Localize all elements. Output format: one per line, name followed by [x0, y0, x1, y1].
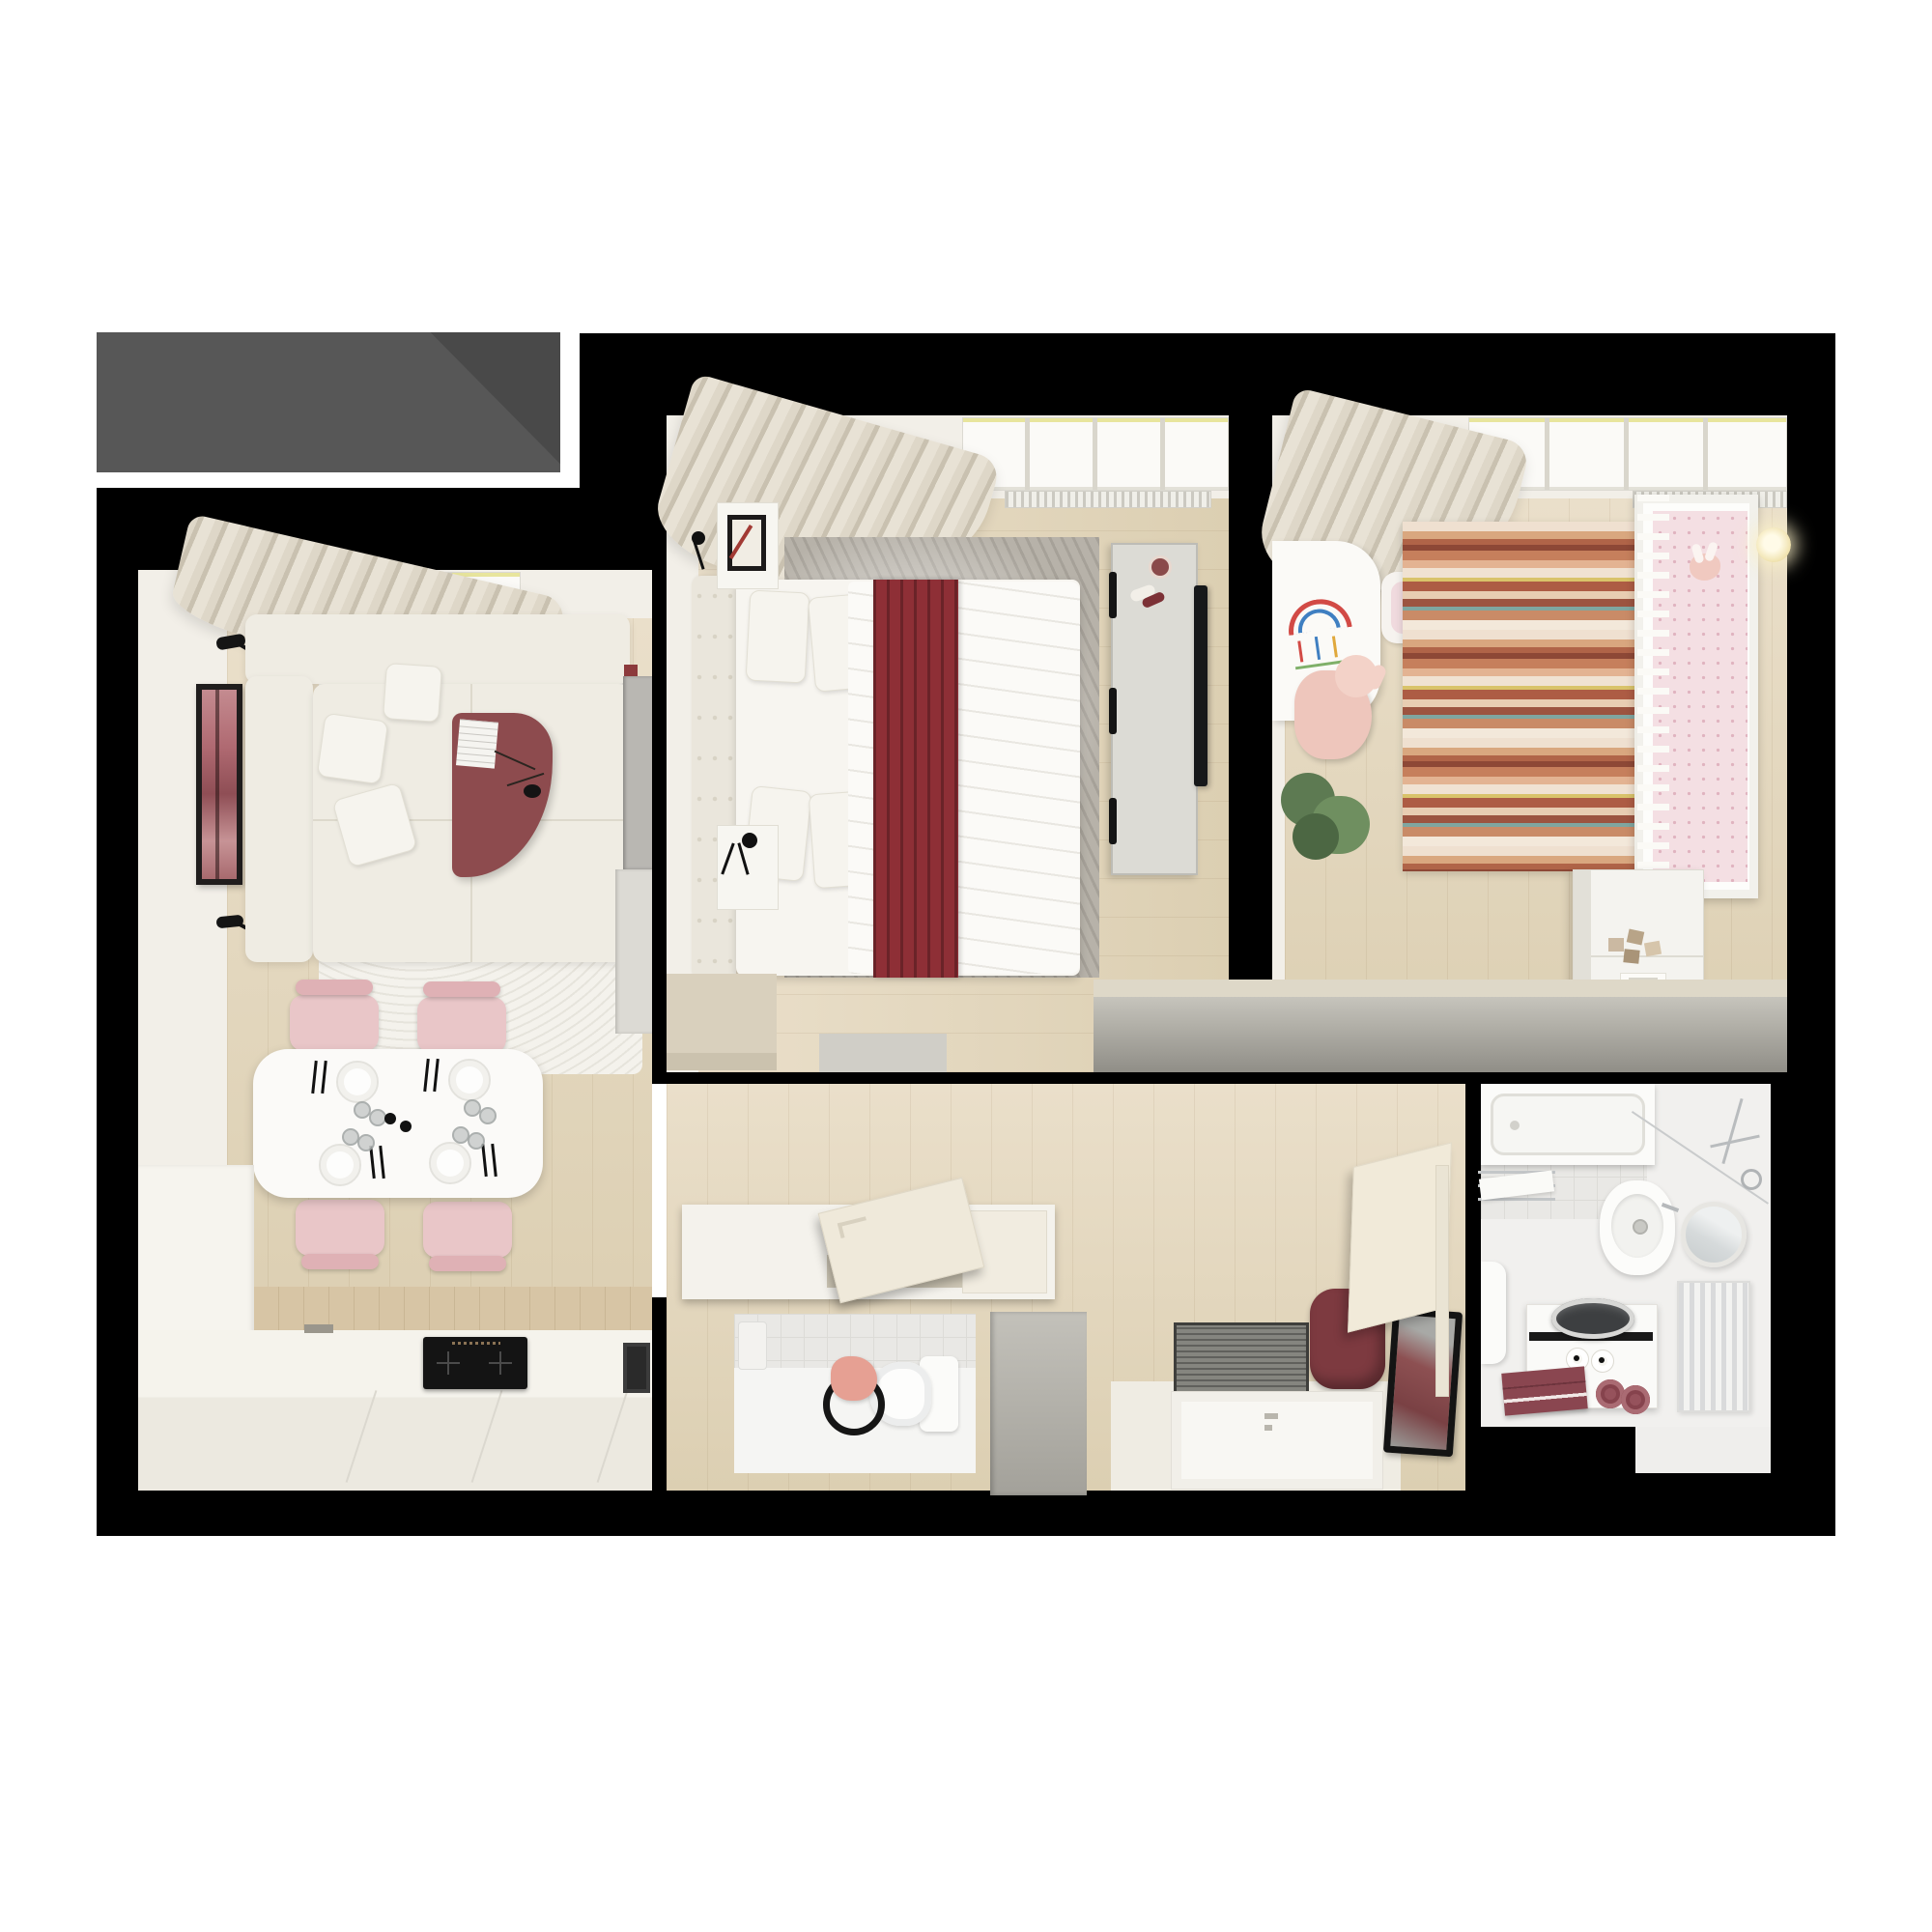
cutlery	[321, 1061, 327, 1094]
crib-bunny-plush	[1686, 542, 1724, 584]
branch	[495, 751, 536, 771]
throw-pillow	[383, 663, 442, 723]
rolled-towel	[1621, 1385, 1650, 1414]
red-runner-blanket	[873, 580, 958, 978]
plate	[319, 1144, 361, 1186]
frame-art	[202, 690, 237, 879]
shower-set-icon	[1702, 1097, 1770, 1194]
burner-cross	[499, 1351, 501, 1375]
toilet-paper-holder	[738, 1321, 767, 1370]
cutlery	[481, 1144, 488, 1177]
branch	[507, 773, 545, 786]
bench-top	[1094, 980, 1787, 997]
wc-room	[734, 1314, 976, 1473]
dining-table	[253, 1049, 543, 1198]
entry-closet	[990, 1312, 1087, 1495]
induction-hob	[423, 1337, 527, 1389]
wall-join	[580, 415, 667, 488]
window-mullion	[1624, 418, 1629, 490]
wall-sconce-icon	[1756, 527, 1791, 562]
burner-cross	[447, 1351, 449, 1375]
chair-backrest	[429, 1256, 506, 1271]
wardrobe-handle	[1109, 798, 1117, 844]
floorplan-render	[0, 0, 1932, 1932]
roll-core	[1599, 1357, 1605, 1363]
lamp-arm	[693, 541, 704, 569]
bathtub	[1481, 1084, 1655, 1165]
potted-plant	[1277, 763, 1376, 867]
towel-rail	[1478, 1165, 1559, 1211]
counter-seam	[346, 1390, 378, 1483]
low-bench	[819, 1034, 947, 1072]
wardrobe	[1111, 543, 1198, 875]
bench-front	[1094, 997, 1787, 1072]
plate	[429, 1142, 471, 1184]
dining-chair	[417, 997, 506, 1053]
cup	[1151, 558, 1169, 576]
crib	[1634, 495, 1758, 898]
window-mullion	[1093, 418, 1097, 490]
cabinet-panel	[615, 869, 652, 1034]
plate	[448, 1059, 491, 1101]
salt-pepper	[400, 1121, 412, 1132]
leaning-art-frame	[623, 1343, 650, 1393]
bed-pillow	[746, 589, 810, 683]
cutlery	[423, 1059, 430, 1092]
window-mullion	[1160, 418, 1165, 490]
roll-core	[1574, 1355, 1579, 1361]
salt-pepper	[384, 1113, 396, 1124]
cutlery	[379, 1146, 385, 1179]
bathroom-floor-tab	[1635, 1427, 1771, 1473]
kitchen-counter	[138, 1330, 652, 1491]
toy-blocks	[1608, 926, 1666, 965]
bed-foot-bench	[667, 974, 777, 1070]
block	[1627, 928, 1645, 945]
door-lock	[1264, 1425, 1272, 1431]
window-mullion	[1025, 418, 1030, 490]
dining-chair	[290, 995, 379, 1051]
striped-rug	[1403, 522, 1642, 871]
shoe-cabinet-frame	[1435, 1165, 1449, 1397]
sink-strip	[304, 1324, 333, 1333]
photo-frame	[727, 515, 766, 571]
rolled-towel	[1596, 1379, 1625, 1408]
hob-controls	[452, 1342, 500, 1345]
foliage	[1293, 813, 1339, 860]
bed-headboard	[692, 576, 736, 980]
chair-backrest	[301, 1254, 379, 1269]
magazine	[456, 719, 498, 768]
cutlery	[491, 1144, 497, 1177]
bedroom-window	[962, 417, 1229, 491]
sofa-arm	[245, 676, 313, 962]
chair-backrest	[423, 981, 500, 997]
crib-rails	[1634, 495, 1669, 898]
counter-seam	[471, 1390, 503, 1483]
mirror	[1383, 1308, 1463, 1458]
wall-lamp-icon	[688, 529, 723, 568]
washer-opening	[1551, 1298, 1634, 1339]
plate	[336, 1061, 379, 1103]
wall-living-bedroom	[652, 488, 667, 1084]
lamp-arm	[721, 843, 734, 875]
dining-chair	[423, 1202, 512, 1258]
basin-drain	[1633, 1219, 1648, 1235]
gray-header-shadow	[97, 332, 560, 472]
chair-backrest	[296, 980, 373, 995]
front-door-open	[1171, 1391, 1383, 1490]
picture-frame	[196, 684, 242, 885]
throw-pillow	[317, 713, 389, 785]
round-mirror	[1681, 1202, 1747, 1267]
wall-left	[97, 488, 138, 1536]
cutlery	[433, 1059, 440, 1092]
wall-lamp-icon	[721, 833, 759, 877]
art-streak	[215, 690, 219, 879]
nursery-bench	[1094, 980, 1787, 1072]
cutlery	[369, 1146, 376, 1179]
glass	[357, 1134, 375, 1151]
lamp-head	[742, 833, 757, 848]
bedroom-radiator	[1005, 491, 1211, 508]
wardrobe-handle	[1109, 572, 1117, 618]
dining-chair	[296, 1200, 384, 1256]
shower-head	[1741, 1169, 1762, 1190]
plush-toy	[1285, 655, 1385, 775]
block	[1608, 938, 1624, 952]
glass	[479, 1107, 497, 1124]
ladder-radiator	[1677, 1281, 1750, 1412]
nightstand	[717, 502, 779, 589]
window-mullion	[1703, 418, 1708, 490]
towel	[1479, 1170, 1554, 1200]
gray-header-block	[97, 332, 560, 472]
tv-panel	[1194, 585, 1207, 786]
counter-seam	[597, 1390, 629, 1483]
wardrobe-panel	[623, 676, 652, 869]
toilet-partial	[1481, 1262, 1506, 1364]
shower-pipe	[1721, 1098, 1743, 1164]
wardrobe-handle	[1109, 688, 1117, 734]
pink-towel	[831, 1356, 877, 1401]
door-handle	[1264, 1413, 1278, 1419]
branch-vase	[516, 777, 545, 806]
tub-drain	[1510, 1121, 1520, 1130]
window-mullion	[1545, 418, 1549, 490]
vase	[524, 784, 541, 798]
washbasin	[1600, 1180, 1675, 1275]
glass	[468, 1132, 485, 1150]
maroon-towel-stack	[1501, 1366, 1588, 1415]
cutlery	[311, 1061, 318, 1094]
shower-arm	[1710, 1135, 1759, 1149]
block	[1623, 949, 1639, 964]
block	[1644, 941, 1662, 957]
